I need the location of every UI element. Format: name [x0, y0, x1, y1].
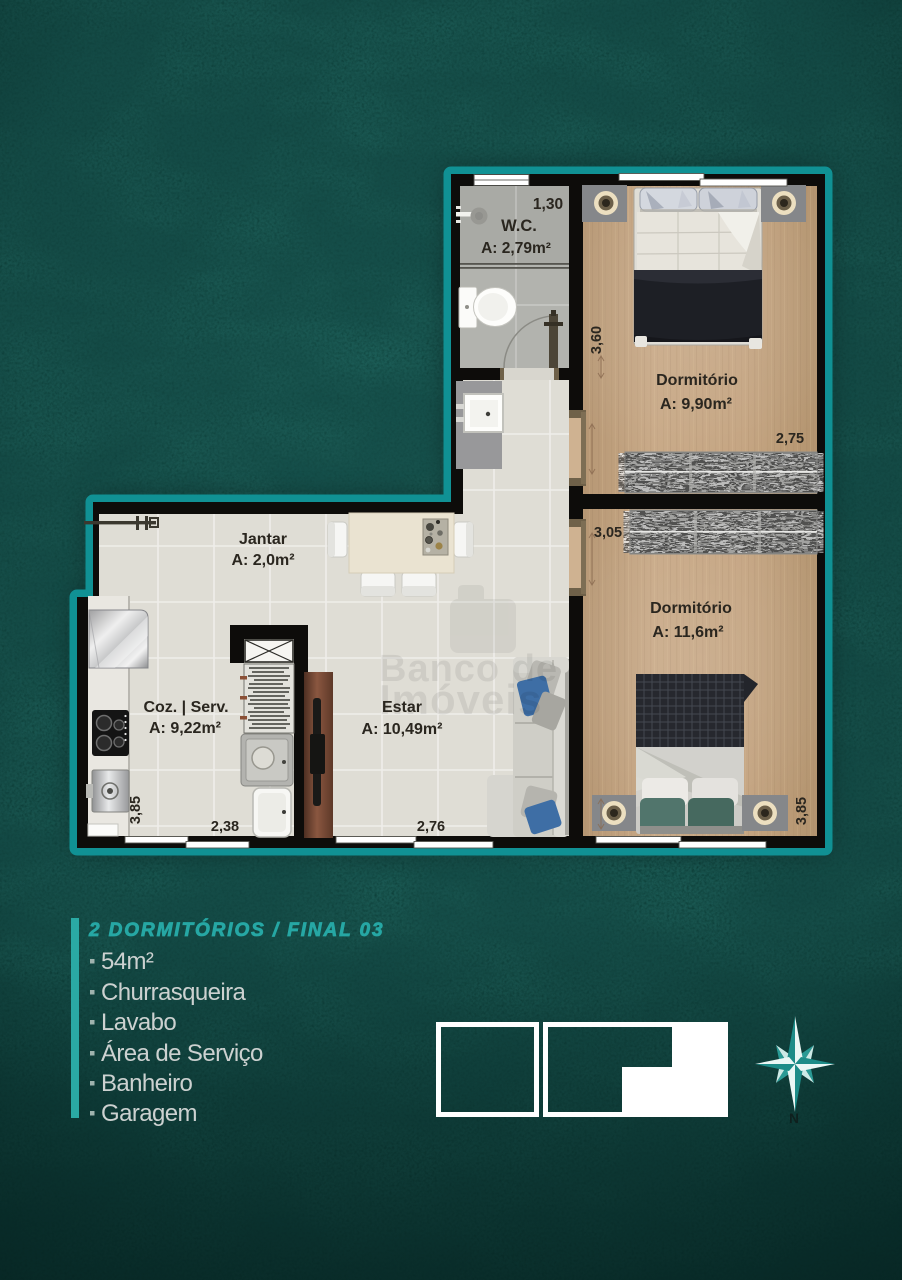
svg-text:3,85: 3,85 [128, 796, 144, 824]
svg-text:2,38: 2,38 [211, 819, 239, 835]
svg-text:3,60: 3,60 [589, 326, 605, 354]
svg-text:3,05: 3,05 [594, 525, 622, 541]
svg-text:Dormitório: Dormitório [656, 372, 738, 389]
svg-text:A: 9,90m²: A: 9,90m² [660, 396, 732, 413]
svg-text:W.C.: W.C. [501, 217, 537, 235]
svg-text:2 DORMITÓRIOS / FINAL 03: 2 DORMITÓRIOS / FINAL 03 [88, 919, 384, 941]
svg-text:Banheiro: Banheiro [101, 1070, 193, 1097]
svg-text:Jantar: Jantar [239, 531, 287, 548]
svg-text:N: N [789, 1111, 799, 1126]
svg-text:Lavabo: Lavabo [101, 1009, 176, 1036]
svg-text:Dormitório: Dormitório [650, 600, 732, 617]
svg-text:Estar: Estar [382, 699, 422, 716]
svg-text:Coz. | Serv.: Coz. | Serv. [143, 699, 228, 716]
svg-text:1,30: 1,30 [533, 196, 563, 213]
svg-text:54m²: 54m² [101, 948, 154, 975]
svg-text:Área de Serviço: Área de Serviço [101, 1040, 263, 1067]
svg-text:Churrasqueira: Churrasqueira [101, 979, 247, 1006]
svg-text:2,75: 2,75 [776, 431, 804, 447]
svg-text:A: 2,79m²: A: 2,79m² [481, 240, 551, 257]
svg-text:A: 10,49m²: A: 10,49m² [362, 721, 443, 738]
svg-text:A: 11,6m²: A: 11,6m² [652, 624, 723, 641]
svg-text:Garagem: Garagem [101, 1100, 197, 1127]
svg-text:2,76: 2,76 [417, 819, 445, 835]
svg-text:A: 9,22m²: A: 9,22m² [149, 720, 221, 737]
svg-text:A: 2,0m²: A: 2,0m² [231, 552, 294, 569]
svg-text:3,85: 3,85 [794, 797, 810, 825]
